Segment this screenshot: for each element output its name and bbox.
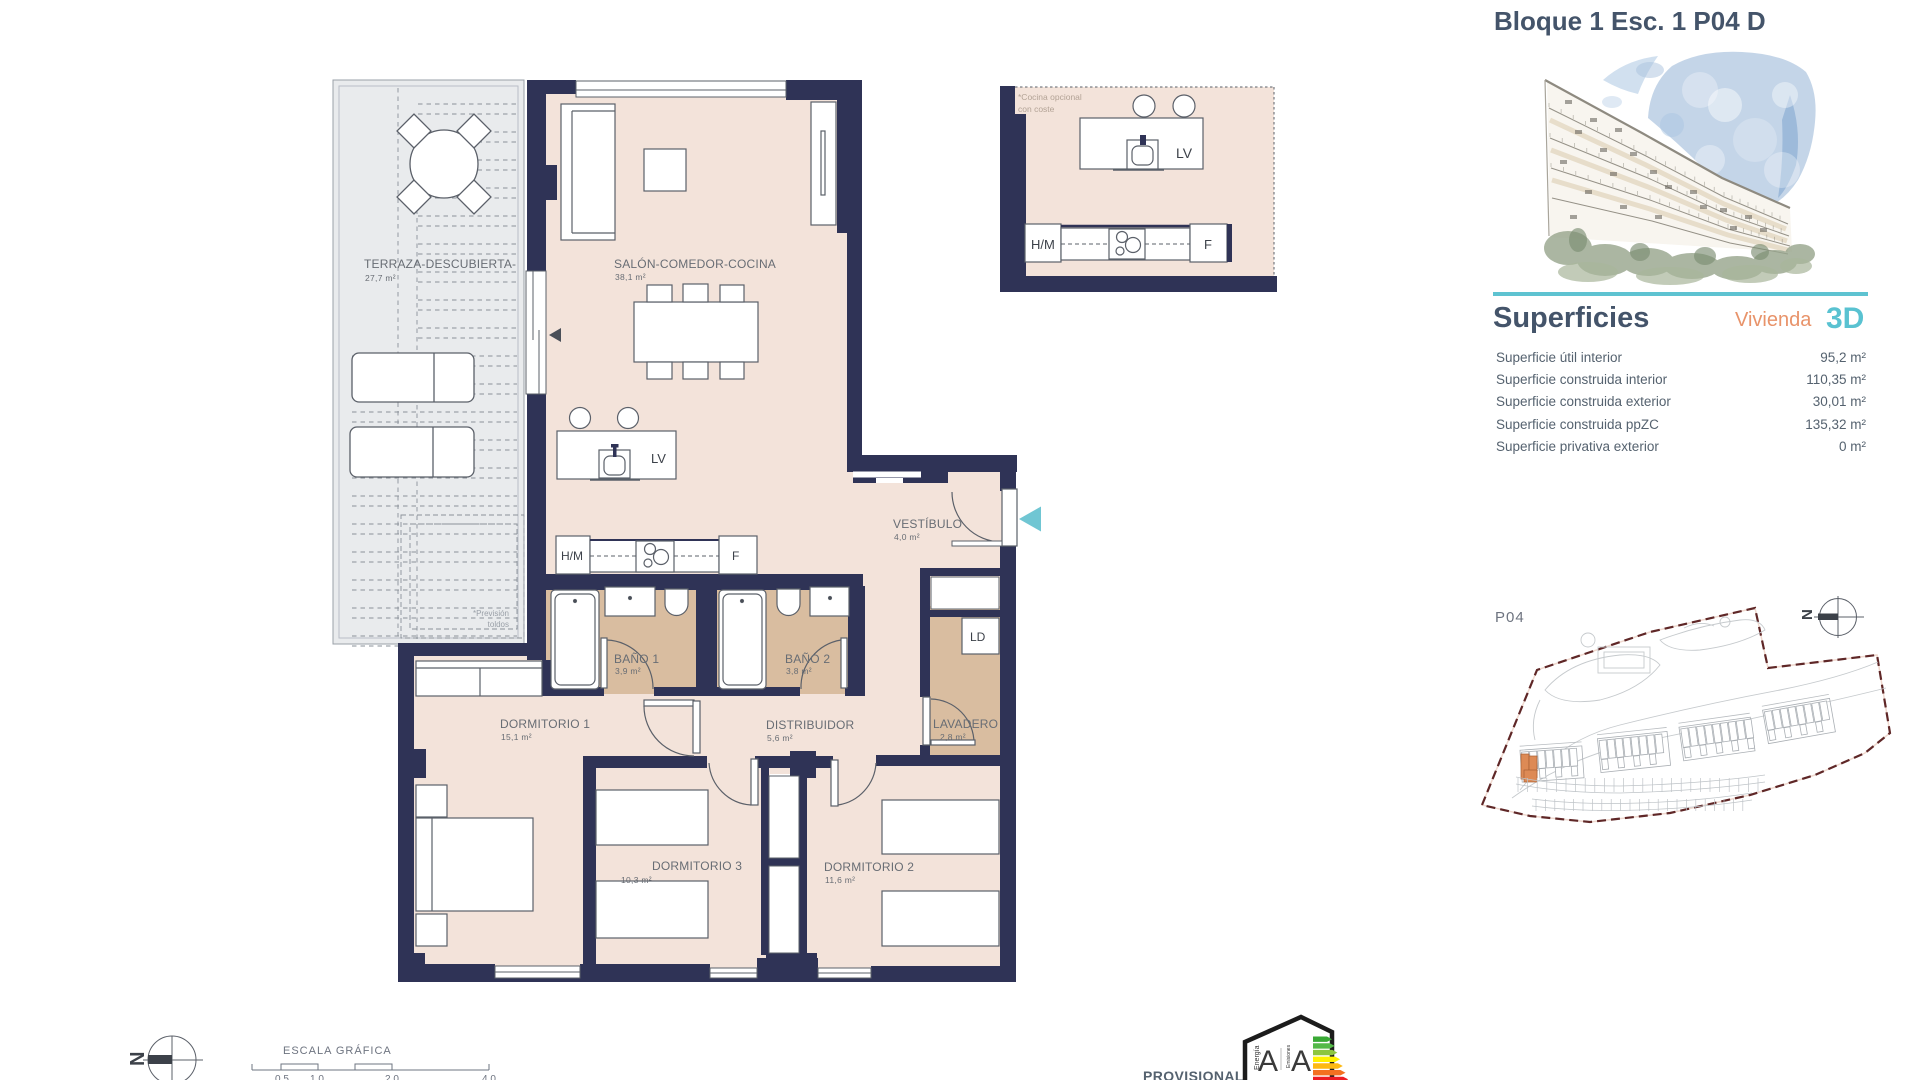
svg-text:Vivienda: Vivienda [1735, 309, 1812, 331]
svg-text:DORMITORIO 1: DORMITORIO 1 [500, 717, 590, 731]
svg-text:10,3 m²: 10,3 m² [621, 875, 652, 885]
svg-text:Superficies: Superficies [1493, 302, 1649, 334]
svg-text:con coste: con coste [1018, 104, 1055, 114]
svg-text:A: A [1291, 1045, 1311, 1078]
svg-text:11,6 m²: 11,6 m² [825, 875, 855, 885]
svg-text:3,9 m²: 3,9 m² [615, 666, 641, 676]
svg-text:DISTRIBUIDOR: DISTRIBUIDOR [766, 718, 855, 732]
svg-text:VESTÍBULO: VESTÍBULO [893, 516, 962, 531]
svg-text:LD: LD [970, 630, 986, 644]
svg-text:0.5: 0.5 [275, 1074, 289, 1080]
svg-text:Superficie construida ppZC: Superficie construida ppZC [1496, 417, 1659, 432]
svg-text:3D: 3D [1826, 302, 1864, 335]
svg-text:95,2 m²: 95,2 m² [1820, 350, 1866, 365]
svg-text:30,01 m²: 30,01 m² [1813, 394, 1867, 409]
svg-text:H/M: H/M [1031, 237, 1055, 252]
svg-text:5,6 m²: 5,6 m² [767, 733, 793, 743]
svg-text:toldos: toldos [488, 620, 509, 629]
svg-text:0 m²: 0 m² [1839, 439, 1867, 454]
svg-text:LV: LV [651, 451, 666, 466]
svg-text:BAÑO 2: BAÑO 2 [785, 652, 830, 666]
svg-text:A: A [1258, 1045, 1278, 1078]
svg-text:38,1 m²: 38,1 m² [615, 272, 646, 282]
svg-text:4.0: 4.0 [482, 1074, 496, 1080]
svg-text:135,32 m²: 135,32 m² [1805, 417, 1866, 432]
svg-text:*Previsión: *Previsión [473, 609, 509, 618]
svg-text:N: N [127, 1052, 149, 1066]
svg-text:DORMITORIO 3: DORMITORIO 3 [652, 859, 742, 873]
svg-text:2,8 m²: 2,8 m² [940, 732, 966, 742]
svg-text:BAÑO 1: BAÑO 1 [614, 652, 659, 666]
svg-text:LAVADERO: LAVADERO [933, 717, 998, 731]
svg-text:1.0: 1.0 [310, 1074, 324, 1080]
svg-text:DORMITORIO 2: DORMITORIO 2 [824, 860, 914, 874]
svg-text:Superficie construida interior: Superficie construida interior [1496, 372, 1668, 387]
svg-text:*Cocina opcional: *Cocina opcional [1018, 92, 1082, 102]
svg-text:2.0: 2.0 [385, 1074, 399, 1080]
svg-text:Superficie privativa exterior: Superficie privativa exterior [1496, 439, 1659, 454]
svg-text:SALÓN-COMEDOR-COCINA: SALÓN-COMEDOR-COCINA [614, 256, 776, 271]
svg-text:P04: P04 [1495, 609, 1525, 626]
svg-text:PROVISIONAL: PROVISIONAL [1143, 1068, 1244, 1080]
svg-text:4,0 m²: 4,0 m² [894, 532, 920, 542]
svg-text:Bloque 1 Esc. 1 P04 D: Bloque 1 Esc. 1 P04 D [1494, 6, 1766, 36]
svg-text:F: F [1204, 237, 1212, 252]
svg-text:27,7 m²: 27,7 m² [365, 273, 396, 283]
svg-text:F: F [732, 549, 739, 563]
svg-text:110,35 m²: 110,35 m² [1806, 372, 1866, 387]
svg-text:15,1 m²: 15,1 m² [501, 732, 532, 742]
svg-text:N: N [1799, 609, 1816, 620]
svg-text:LV: LV [1176, 145, 1193, 161]
svg-text:Superficie construida exterior: Superficie construida exterior [1496, 394, 1671, 409]
svg-text:H/M: H/M [561, 549, 583, 563]
svg-text:ESCALA GRÁFICA: ESCALA GRÁFICA [283, 1044, 392, 1057]
svg-text:TERRAZA-DESCUBIERTA-: TERRAZA-DESCUBIERTA- [364, 257, 516, 271]
svg-text:3,8 m²: 3,8 m² [786, 666, 812, 676]
svg-text:Superficie útil interior: Superficie útil interior [1496, 350, 1623, 365]
